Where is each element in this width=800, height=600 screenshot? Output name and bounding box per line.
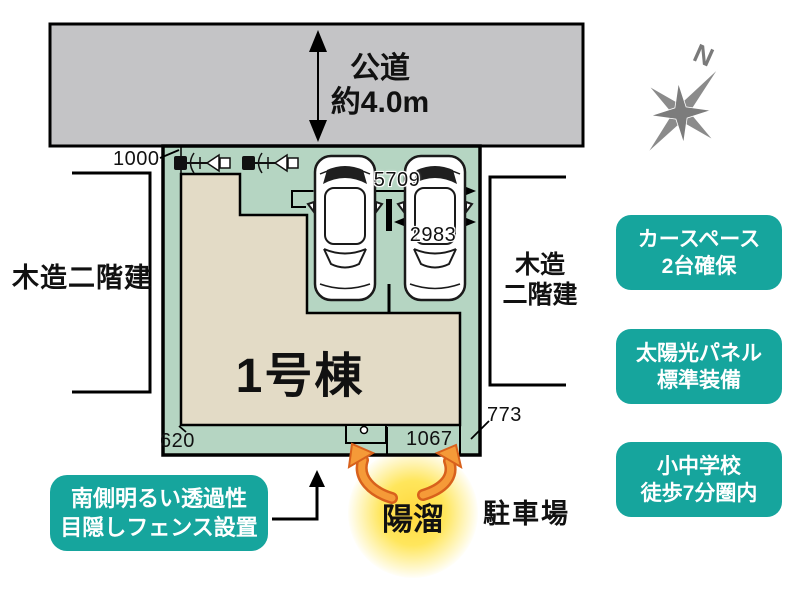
feature-badge-school: 小中学校 徒歩7分圏内 [616, 442, 782, 517]
badge-line: 小中学校 [616, 453, 782, 480]
road-label: 公道 約4.0m [300, 52, 460, 120]
fence-badge: 南側明るい透過性 目隠しフェンス設置 [50, 475, 268, 551]
dim-2983-label: 2983 [393, 224, 473, 247]
dim-1000-label: 1000 [113, 148, 160, 171]
badge-line: 2台確保 [616, 253, 782, 280]
neighbor-right-label: 木造 二階建 [488, 250, 592, 310]
dim-5709-label: 5709 [357, 169, 437, 192]
fence-badge-line1: 南側明るい透過性 [50, 484, 268, 513]
entrance-porch [346, 425, 386, 443]
dim-773-label: 773 [487, 404, 522, 427]
site-plan-page: 公道 約4.0m N 1000 5709 2983 620 1067 773 木… [0, 0, 800, 600]
dim-1067-label: 1067 [406, 428, 453, 451]
badge-line: 標準装備 [616, 367, 782, 394]
neighbor-right-line2: 二階建 [502, 281, 577, 309]
badge-line: カースペース [616, 226, 782, 253]
building-number-label: 1号棟 [180, 336, 420, 406]
fence-callout-arrow [272, 470, 325, 519]
dim-620-label: 620 [160, 430, 195, 453]
badge-line: 徒歩7分圏内 [616, 480, 782, 507]
feature-badge-solar: 太陽光パネル 標準装備 [616, 329, 782, 404]
neighbor-left-label: 木造二階建 [12, 256, 152, 295]
parking-lot-label: 駐車場 [483, 492, 570, 531]
sun-spot-label: 陽溜 [373, 494, 453, 539]
compass-rose-icon [648, 69, 719, 153]
fence-badge-line2: 目隠しフェンス設置 [50, 513, 268, 542]
feature-badge-carspace: カースペース 2台確保 [616, 215, 782, 290]
road-name: 公道 [350, 52, 410, 85]
road-width: 約4.0m [331, 86, 429, 119]
neighbor-right-line1: 木造 [515, 251, 565, 279]
badge-line: 太陽光パネル [616, 340, 782, 367]
